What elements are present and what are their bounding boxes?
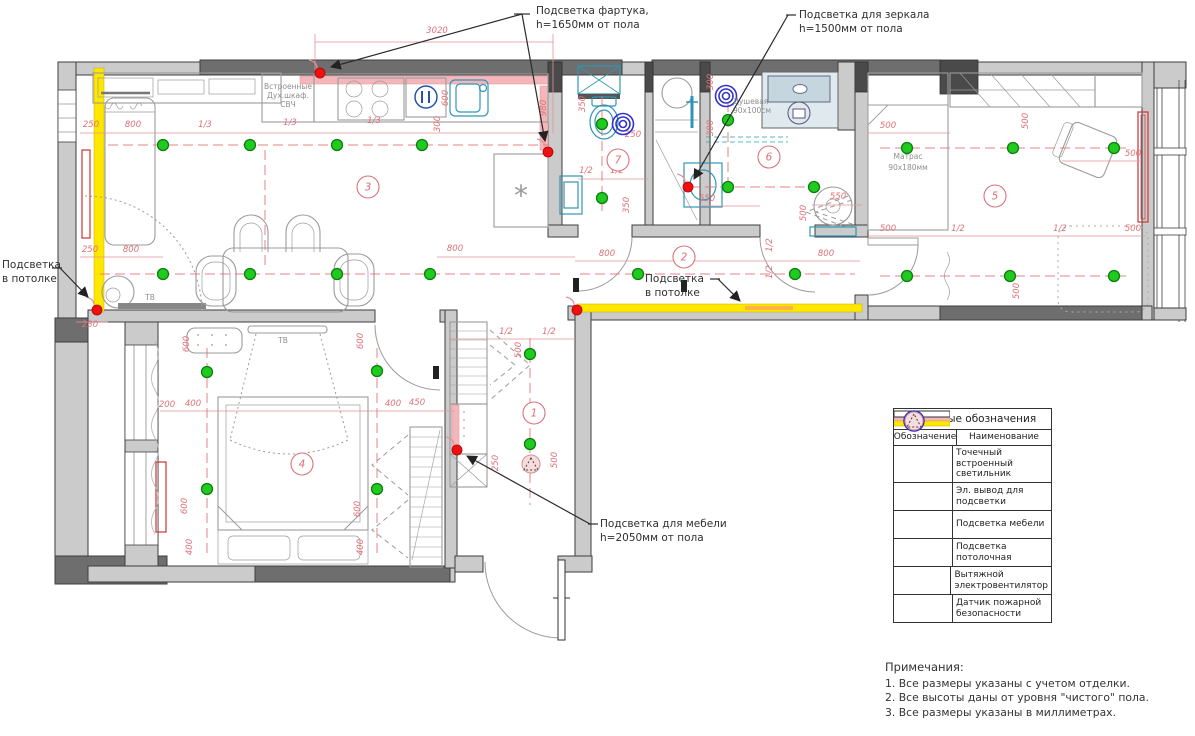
dimension-label: 500	[550, 452, 560, 468]
tv-label: ТВ	[144, 293, 155, 302]
callout-mirror-lighting: Подсветка для зеркала h=1500мм от пола	[799, 8, 930, 36]
fridge-asterisk: *	[514, 179, 528, 212]
dimension-label: 300	[706, 120, 716, 136]
note-item: 2. Все высоты даны от уровня "чистого" п…	[885, 691, 1149, 705]
legend-row: Подсветка потолочная	[894, 539, 1051, 567]
dimension-label: 600	[441, 90, 451, 106]
spot-light	[425, 269, 436, 280]
room-number: 7	[615, 155, 622, 167]
dimension-label: 350	[578, 96, 588, 112]
dimension-label: 250	[625, 130, 641, 140]
spot-light	[202, 484, 213, 495]
spot-light	[1005, 271, 1016, 282]
room-number: 5	[992, 191, 999, 203]
room-number: 4	[299, 459, 306, 471]
kitchen-appliances-label: Встроенные	[264, 82, 312, 91]
dimension-label: 3020	[426, 26, 448, 36]
exhaust-fan	[719, 89, 733, 103]
callout-furniture-lighting: Подсветка для мебели h=2050мм от пола	[600, 517, 727, 545]
dimension-label: 250	[491, 455, 501, 471]
dimension-label: 600	[353, 501, 363, 517]
dimension-label: 400	[185, 399, 201, 409]
legend-label: Эл. вывод для подсветки	[953, 484, 1051, 510]
dimension-label: 800	[599, 249, 615, 259]
spot-light	[245, 140, 256, 151]
electric-outlet	[452, 445, 462, 455]
bench	[187, 328, 242, 353]
dimension-label: 1/2	[765, 238, 775, 252]
dimension-label: 400	[385, 399, 401, 409]
dimension-label: 1/2	[579, 166, 593, 176]
spot-light	[597, 193, 608, 204]
spot-light	[417, 140, 428, 151]
spot-light	[809, 182, 820, 193]
note-item: 1. Все размеры указаны с учетом отделки.	[885, 677, 1149, 691]
spot-light	[332, 269, 343, 280]
exhaust-fan	[723, 93, 730, 100]
shower-label: 90x100см	[733, 106, 771, 115]
spot-light	[372, 484, 383, 495]
electric-outlet	[543, 147, 553, 157]
exhaust-fan	[620, 121, 627, 128]
tv-stand	[118, 303, 206, 309]
dining-table	[223, 248, 348, 312]
callout-ceiling-lighting-left: Подсветка в потолке	[2, 258, 61, 286]
dimension-label: 500	[880, 121, 896, 131]
dimension-label: 500	[880, 224, 896, 234]
dimension-label: 800	[123, 245, 139, 255]
dimension-label: 500	[1125, 224, 1141, 234]
legend-row: Точечный встроенный светильник	[894, 446, 1051, 483]
spot-light	[723, 182, 734, 193]
entrance-door	[558, 560, 565, 640]
callout-line: Подсветка для зеркала	[799, 8, 930, 22]
tv-bedroom-stand	[248, 326, 327, 333]
dimension-label: 550	[699, 194, 715, 204]
dimension-label: 350	[622, 197, 632, 213]
legend-row: Подсветка мебели	[894, 511, 1051, 539]
room-number: 3	[365, 182, 372, 194]
spot-light	[597, 119, 608, 130]
mattress-label: Матрас	[894, 152, 923, 161]
kitchen-appliances-label: СВЧ	[280, 100, 296, 109]
callout-line: Подсветка	[2, 258, 61, 272]
dimension-label: 1/2	[951, 224, 965, 234]
dimension-label: 600	[356, 333, 366, 349]
dimension-label: 500	[1125, 149, 1141, 159]
legend-label: Точечный встроенный светильник	[953, 446, 1051, 482]
dimension-label: 450	[409, 398, 425, 408]
legend-label: Датчик пожарной безопасности	[953, 596, 1051, 622]
legend-row: Вытяжной электровентилятор	[894, 567, 1051, 595]
dimension-label: 1/3	[198, 120, 212, 130]
tv-label: ТВ	[277, 336, 288, 345]
dimension-label: 1/2	[765, 265, 775, 279]
dimension-label: 800	[818, 249, 834, 259]
spot-light	[902, 271, 913, 282]
furniture-strip-kitchen	[300, 76, 548, 84]
legend-label: Подсветка мебели	[953, 517, 1051, 532]
dimension-label: 400	[356, 539, 366, 555]
room-number: 6	[766, 152, 773, 164]
legend-row: Эл. вывод для подсветки	[894, 483, 1051, 511]
dimension-label: 500	[799, 205, 809, 221]
dimension-label: 800	[125, 120, 141, 130]
room-number: 2	[681, 252, 688, 264]
dimension-label: 600	[180, 498, 190, 514]
ceiling-strip-corridor	[577, 304, 862, 312]
legend-col-name: Наименование	[957, 430, 1051, 445]
dimension-label: 1/2	[542, 327, 556, 337]
note-item: 3. Все размеры указаны в миллиметрах.	[885, 706, 1149, 720]
dimension-label: 600	[182, 336, 192, 352]
dimension-label: 500	[1021, 113, 1031, 129]
legend-row: Датчик пожарной безопасности	[894, 595, 1051, 622]
spot-light	[1109, 271, 1120, 282]
dimension-label: 400	[185, 539, 195, 555]
dimension-label: 1/2	[499, 327, 513, 337]
outlet-wire	[86, 297, 94, 307]
callout-line: в потолке	[2, 272, 61, 286]
legend-table: Условные обозначения Обозначение Наимено…	[893, 408, 1052, 623]
callout-line: в потолке	[645, 286, 704, 300]
spot-light	[633, 269, 644, 280]
spot-light	[202, 367, 213, 378]
callout-line: h=1650мм от пола	[536, 18, 649, 32]
dimension-label: 230	[82, 320, 98, 330]
notes-title: Примечания:	[885, 660, 1149, 674]
dimension-label: 1/2	[1053, 224, 1067, 234]
spot-light	[790, 269, 801, 280]
callout-line: Подсветка для мебели	[600, 517, 727, 531]
spot-light	[245, 269, 256, 280]
callout-line: Подсветка	[645, 272, 704, 286]
spot-light	[525, 349, 536, 360]
floor-plan-page: 30202508001/31/31/3600300980250800230800…	[0, 0, 1195, 736]
dimension-label: 250	[82, 245, 98, 255]
spot-light	[525, 439, 536, 450]
dimension-label: 300	[706, 74, 716, 90]
spot-light	[158, 140, 169, 151]
spot-light	[372, 366, 383, 377]
dimension-label: 550	[830, 192, 846, 202]
ceiling-strip-accent	[745, 306, 793, 310]
dimension-label: 800	[447, 244, 463, 254]
dimension-label: 500	[514, 342, 524, 358]
electric-outlet	[683, 182, 693, 192]
electric-outlet	[315, 68, 325, 78]
callout-line: h=2050мм от пола	[600, 531, 727, 545]
spot-light	[158, 269, 169, 280]
radiator	[82, 150, 90, 238]
dimension-label: 200	[159, 400, 175, 410]
notes-block: Примечания: 1. Все размеры указаны с уче…	[885, 660, 1149, 720]
callout-line: Подсветка фартука,	[536, 4, 649, 18]
ceiling-strip-left	[94, 68, 104, 312]
dimension-label: 300	[433, 116, 443, 132]
electric-outlet	[92, 305, 102, 315]
floor-plan-drawing: 30202508001/31/31/3600300980250800230800…	[0, 0, 1195, 736]
legend-label: Подсветка потолочная	[953, 540, 1051, 566]
dimension-label: 500	[1012, 283, 1022, 299]
callout-line: h=1500мм от пола	[799, 22, 930, 36]
kitchen-appliances-label: Дух.шкаф.	[267, 91, 309, 100]
callout-ceiling-lighting-corridor: Подсветка в потолке	[645, 272, 704, 300]
dimension-label: 1/3	[283, 118, 297, 128]
spot-light	[1008, 143, 1019, 154]
spot-light	[1109, 143, 1120, 154]
legend-label: Вытяжной электровентилятор	[951, 568, 1051, 594]
callout-apron-lighting: Подсветка фартука, h=1650мм от пола	[536, 4, 649, 32]
fire-sensor-icon	[894, 409, 934, 433]
rug	[1058, 226, 1148, 312]
spot-light	[332, 140, 343, 151]
room-number: 1	[531, 408, 538, 420]
electric-outlet	[572, 305, 582, 315]
mattress-label: 90x180мм	[888, 163, 928, 172]
dimension-label: 250	[83, 120, 99, 130]
dimension-label: 1/3	[367, 116, 381, 126]
